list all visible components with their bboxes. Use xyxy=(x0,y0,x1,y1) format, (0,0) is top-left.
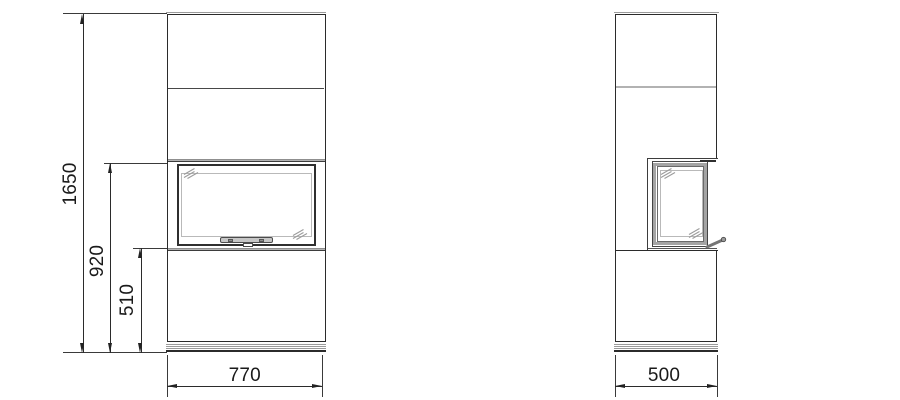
dimension-line xyxy=(615,386,717,387)
side-lower-right-edge xyxy=(716,250,718,342)
side-top-edge xyxy=(615,14,718,16)
front-width-label: 770 xyxy=(229,365,261,387)
arrow-down-icon xyxy=(108,343,112,353)
glass-reflection-icon xyxy=(292,227,308,240)
plinth-base-line xyxy=(614,350,718,352)
extension-line xyxy=(615,355,616,397)
arrow-right-icon xyxy=(312,384,322,388)
arrow-left-icon xyxy=(167,384,177,388)
arrow-down-icon xyxy=(138,343,142,353)
side-mid-column-edge xyxy=(647,158,648,251)
dimension-line xyxy=(141,248,142,353)
glass-reflection-icon xyxy=(660,166,676,179)
side-depth-label: 500 xyxy=(648,365,680,387)
front-door-latch xyxy=(243,243,252,247)
extension-line xyxy=(322,355,323,397)
glass-reflection-icon xyxy=(688,226,704,239)
arrow-left-icon xyxy=(615,384,625,388)
extension-line xyxy=(63,352,167,353)
plinth-line xyxy=(166,348,326,349)
total-height-label: 1650 xyxy=(60,162,82,205)
arrow-right-icon xyxy=(707,384,717,388)
arrow-up-icon xyxy=(80,14,84,24)
side-left-edge xyxy=(615,14,617,343)
plinth-line xyxy=(166,346,326,347)
plinth-line xyxy=(166,344,326,345)
plinth-line xyxy=(614,346,718,347)
extension-line xyxy=(717,355,718,397)
dimension-drawing: 1650 920 510 770 500 xyxy=(0,0,900,400)
front-upper-divider-line xyxy=(168,88,324,89)
plinth-base-line xyxy=(166,350,326,352)
glass-reflection-icon xyxy=(183,166,199,179)
dimension-line xyxy=(83,14,84,353)
extension-line xyxy=(104,163,167,164)
arrow-down-icon xyxy=(80,343,84,353)
handle-nub xyxy=(259,239,265,242)
side-upper-block-bottom xyxy=(648,158,719,159)
arrow-up-icon xyxy=(108,163,112,173)
front-firebox-top-band xyxy=(168,159,325,162)
side-lower-block-top xyxy=(615,250,719,252)
side-upper-right-edge xyxy=(716,14,718,159)
side-hinge xyxy=(700,160,717,163)
extension-line xyxy=(63,13,167,14)
plinth-line xyxy=(614,344,718,345)
side-under-frame-line xyxy=(648,248,717,249)
extension-line xyxy=(167,355,168,397)
firebox-bottom-height-label: 510 xyxy=(117,284,139,316)
arrow-up-icon xyxy=(138,248,142,258)
firebox-top-height-label: 920 xyxy=(87,245,109,277)
plinth-line xyxy=(614,348,718,349)
side-body-bottom xyxy=(615,341,718,342)
handle-nub xyxy=(228,239,234,242)
front-firebox-bottom-band xyxy=(168,248,325,251)
dimension-line xyxy=(110,163,111,352)
side-upper-divider-line xyxy=(616,86,717,88)
